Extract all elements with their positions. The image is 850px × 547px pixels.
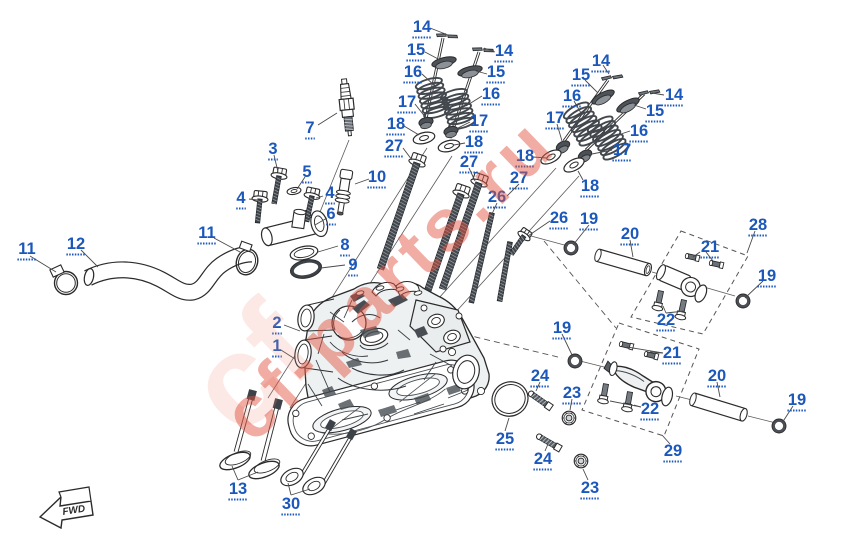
svg-text:23: 23 xyxy=(581,479,599,497)
svg-text:24: 24 xyxy=(534,450,553,468)
svg-text:24: 24 xyxy=(531,367,550,385)
svg-text:15: 15 xyxy=(572,66,590,84)
svg-text:7: 7 xyxy=(305,119,314,137)
svg-text:14: 14 xyxy=(665,86,684,104)
svg-text:30: 30 xyxy=(282,495,300,513)
svg-text:17: 17 xyxy=(613,141,631,159)
svg-text:20: 20 xyxy=(621,225,639,243)
svg-text:26: 26 xyxy=(550,209,568,227)
svg-text:29: 29 xyxy=(664,442,682,460)
svg-text:13: 13 xyxy=(229,480,247,498)
svg-text:10: 10 xyxy=(368,168,386,186)
svg-text:25: 25 xyxy=(496,430,514,448)
svg-text:14: 14 xyxy=(413,18,432,36)
svg-text:21: 21 xyxy=(701,238,719,256)
svg-text:14: 14 xyxy=(495,42,514,60)
svg-text:4: 4 xyxy=(236,189,246,207)
svg-text:16: 16 xyxy=(482,85,500,103)
svg-text:4: 4 xyxy=(325,184,335,202)
svg-text:19: 19 xyxy=(553,319,571,337)
svg-text:18: 18 xyxy=(387,115,405,133)
svg-text:22: 22 xyxy=(657,311,675,329)
svg-text:19: 19 xyxy=(788,391,806,409)
svg-text:3: 3 xyxy=(268,140,277,158)
svg-text:17: 17 xyxy=(546,109,564,127)
svg-text:16: 16 xyxy=(630,122,648,140)
svg-text:17: 17 xyxy=(398,93,416,111)
svg-text:6: 6 xyxy=(326,205,335,223)
svg-text:11: 11 xyxy=(18,240,35,258)
svg-text:8: 8 xyxy=(340,236,349,254)
svg-text:27: 27 xyxy=(385,137,403,155)
svg-text:15: 15 xyxy=(646,102,664,120)
svg-text:14: 14 xyxy=(592,52,611,70)
svg-text:19: 19 xyxy=(580,210,598,228)
svg-text:5: 5 xyxy=(302,163,311,181)
svg-text:11: 11 xyxy=(198,224,215,242)
svg-text:28: 28 xyxy=(749,216,767,234)
svg-text:19: 19 xyxy=(758,267,776,285)
svg-text:16: 16 xyxy=(563,87,581,105)
svg-text:16: 16 xyxy=(404,63,422,81)
svg-text:15: 15 xyxy=(487,63,505,81)
svg-text:23: 23 xyxy=(563,384,581,402)
svg-text:21: 21 xyxy=(663,344,681,362)
svg-text:18: 18 xyxy=(581,177,599,195)
svg-text:22: 22 xyxy=(641,400,659,418)
svg-text:20: 20 xyxy=(708,367,726,385)
svg-text:12: 12 xyxy=(67,235,85,253)
svg-text:15: 15 xyxy=(407,41,425,59)
